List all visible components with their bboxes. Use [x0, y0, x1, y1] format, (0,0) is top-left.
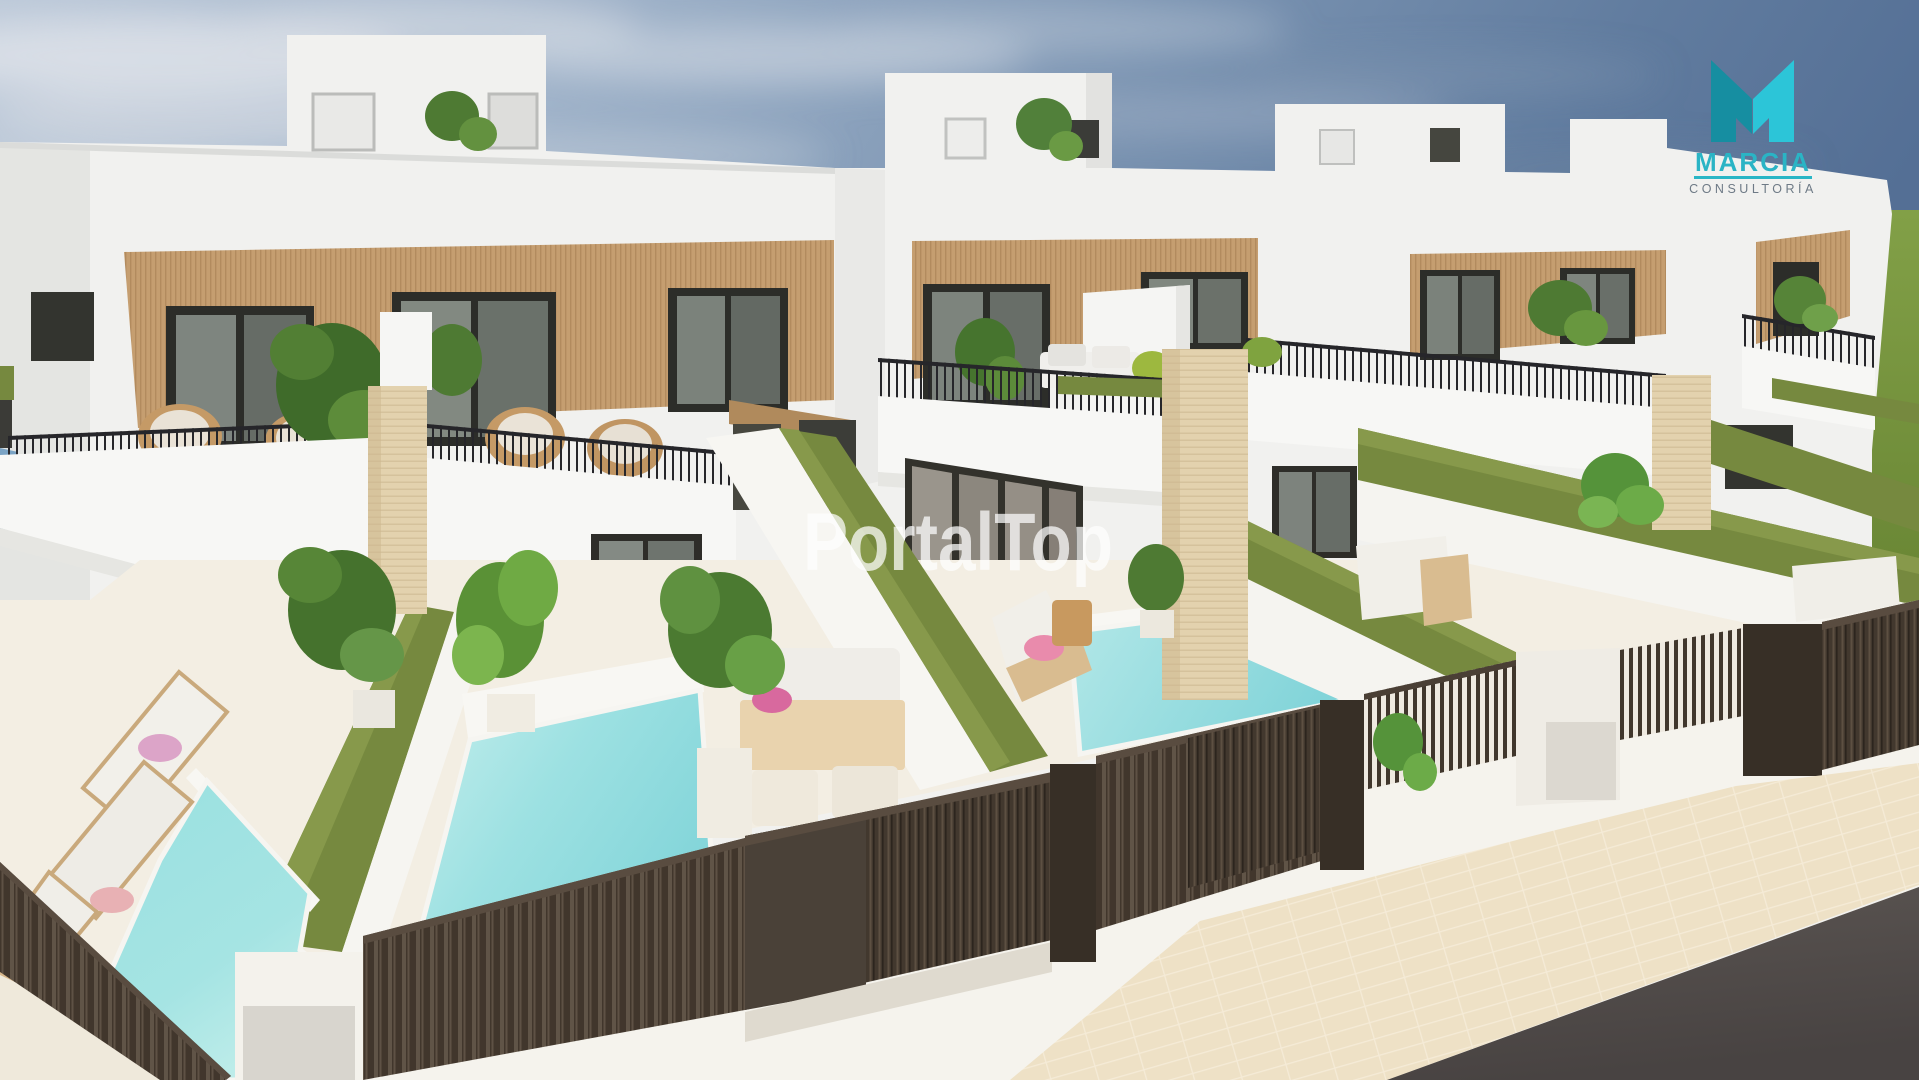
svg-text:CONSULTORÍA: CONSULTORÍA: [1689, 181, 1817, 196]
svg-text:PortalTop: PortalTop: [803, 497, 1113, 588]
svg-text:MARCIA: MARCIA: [1695, 147, 1811, 177]
